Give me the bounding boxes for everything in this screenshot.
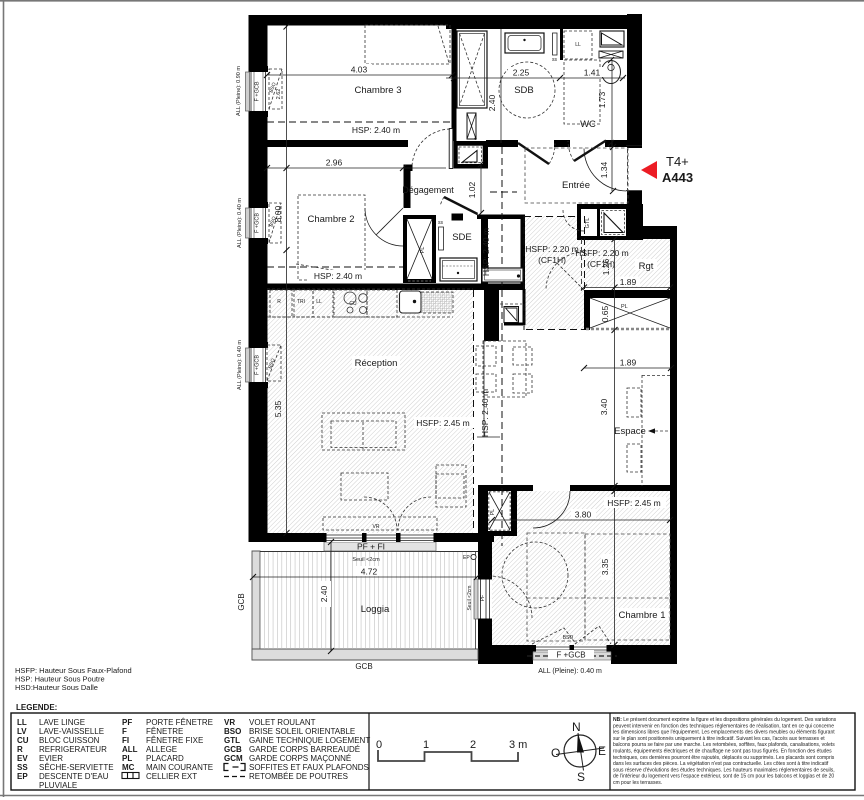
svg-text:(CF1H): (CF1H) xyxy=(587,259,615,269)
svg-text:BSO: BSO xyxy=(224,727,241,736)
svg-text:roulants, équipements électriq: roulants, équipements électriques et de … xyxy=(613,749,832,755)
svg-text:2.96: 2.96 xyxy=(326,158,343,168)
svg-text:GTL: GTL xyxy=(224,736,240,745)
svg-text:Espace: Espace xyxy=(614,426,646,437)
svg-text:BRISE SOLEIL ORIENTABLE: BRISE SOLEIL ORIENTABLE xyxy=(249,727,355,736)
svg-text:1.73: 1.73 xyxy=(597,91,607,108)
svg-text:T4+: T4+ xyxy=(666,154,689,169)
svg-text:3.80: 3.80 xyxy=(575,510,592,520)
svg-text:Réception: Réception xyxy=(355,358,398,369)
svg-text:ALL: ALL xyxy=(122,745,138,754)
svg-text:balcons pourra se faire par un: balcons pourra se faire par une marche. … xyxy=(613,742,835,748)
svg-text:GTL: GTL xyxy=(585,218,591,229)
svg-text:Loggia: Loggia xyxy=(361,604,390,615)
svg-text:SDB: SDB xyxy=(514,85,534,96)
svg-text:2.40: 2.40 xyxy=(487,94,497,111)
svg-text:DESCENTE D'EAU: DESCENTE D'EAU xyxy=(39,772,109,781)
svg-text:PORTE FÊNETRE: PORTE FÊNETRE xyxy=(146,718,213,727)
svg-text:ALLEGE: ALLEGE xyxy=(146,745,177,754)
svg-text:PL: PL xyxy=(420,247,426,254)
svg-text:Chambre 2: Chambre 2 xyxy=(308,214,355,225)
svg-text:GARDE CORPS BARREAUDÉ: GARDE CORPS BARREAUDÉ xyxy=(249,745,360,754)
svg-text:S: S xyxy=(577,770,585,784)
svg-text:FI: FI xyxy=(122,736,129,745)
svg-text:N: N xyxy=(572,720,581,734)
svg-text:Rgt: Rgt xyxy=(639,261,654,272)
svg-text:2.62: 2.62 xyxy=(276,89,282,100)
svg-text:PF + FI: PF + FI xyxy=(357,542,385,552)
svg-text:SOFFITES ET FAUX PLAFONDS: SOFFITES ET FAUX PLAFONDS xyxy=(249,763,369,772)
svg-text:Seuil <2cm: Seuil <2cm xyxy=(352,557,380,563)
svg-text:NB: Le présent document expri: NB: Le présent document exprime la figur… xyxy=(613,717,837,723)
svg-text:3.35: 3.35 xyxy=(600,558,610,575)
svg-text:A443: A443 xyxy=(662,170,693,185)
svg-text:BLOC CUISSON: BLOC CUISSON xyxy=(39,736,100,745)
svg-text:GCB: GCB xyxy=(237,593,246,610)
svg-text:LAVE-VAISSELLE: LAVE-VAISSELLE xyxy=(39,727,104,736)
svg-text:EV: EV xyxy=(17,754,28,763)
svg-text:2.40: 2.40 xyxy=(319,585,329,602)
svg-text:PLACARD: PLACARD xyxy=(146,754,184,763)
svg-text:1.02: 1.02 xyxy=(467,181,477,198)
svg-text:techniques, ces dernières pour: techniques, ces dernières pourront être … xyxy=(613,755,835,761)
svg-text:peuvent intervenir en fonction: peuvent intervenir en fonction des techn… xyxy=(613,723,834,729)
svg-text:REFRIGERATEUR: REFRIGERATEUR xyxy=(39,745,107,754)
svg-text:GCB: GCB xyxy=(224,745,242,754)
svg-text:MAIN COURANTE: MAIN COURANTE xyxy=(146,763,213,772)
svg-text:VR: VR xyxy=(224,718,235,727)
svg-text:CELLIER EXT: CELLIER EXT xyxy=(146,772,197,781)
svg-text:RETOMBÉE DE POUTRES: RETOMBÉE DE POUTRES xyxy=(249,772,348,781)
svg-text:F +GCB: F +GCB xyxy=(255,81,261,101)
svg-text:VOLET ROULANT: VOLET ROULANT xyxy=(249,718,316,727)
svg-text:LL: LL xyxy=(17,718,27,727)
svg-text:BSO: BSO xyxy=(563,635,574,641)
svg-text:PL: PL xyxy=(122,754,132,763)
svg-text:ss: ss xyxy=(552,57,558,63)
svg-text:Entrée: Entrée xyxy=(562,180,590,191)
svg-text:0: 0 xyxy=(376,739,382,751)
svg-text:5.35: 5.35 xyxy=(273,400,283,417)
svg-text:3.40: 3.40 xyxy=(599,398,609,415)
svg-text:2.25: 2.25 xyxy=(513,68,530,78)
svg-text:LL: LL xyxy=(575,42,581,48)
svg-text:EVIER: EVIER xyxy=(39,754,63,763)
svg-text:PLUVIALE: PLUVIALE xyxy=(39,781,77,790)
svg-text:1.89: 1.89 xyxy=(620,277,637,287)
svg-text:GAINE TECHNIQUE LOGEMENT: GAINE TECHNIQUE LOGEMENT xyxy=(249,736,370,745)
svg-text:cm pour les terrasses.: cm pour les terrasses. xyxy=(613,780,662,786)
svg-text:F +GCB: F +GCB xyxy=(255,355,261,375)
svg-text:F +GCB: F +GCB xyxy=(255,213,261,233)
svg-text:ALL (Pleine): 0.90 m: ALL (Pleine): 0.90 m xyxy=(236,66,242,116)
svg-text:4.72: 4.72 xyxy=(361,567,378,577)
svg-text:HSFP: 2.45 m: HSFP: 2.45 m xyxy=(416,418,469,428)
svg-text:TRI: TRI xyxy=(297,299,305,305)
svg-text:les dimensions libres que l'éq: les dimensions libres que l'équipement. … xyxy=(613,730,835,736)
svg-text:LL: LL xyxy=(316,299,322,305)
svg-text:HSD:Hauteur Sous Dalle: HSD:Hauteur Sous Dalle xyxy=(15,683,98,692)
svg-text:PF: PF xyxy=(122,718,132,727)
svg-text:HSP: 2.40 m: HSP: 2.40 m xyxy=(314,271,362,281)
svg-text:GCM: GCM xyxy=(224,754,243,763)
svg-text:HSFP: 2.20 m: HSFP: 2.20 m xyxy=(575,248,628,258)
svg-text:R: R xyxy=(17,745,23,754)
svg-text:2: 2 xyxy=(470,739,476,751)
svg-text:de l'intérieur du logement ver: de l'intérieur du logement vers l'espace… xyxy=(613,774,834,780)
svg-text:EP: EP xyxy=(463,555,470,561)
svg-text:SS: SS xyxy=(17,763,28,772)
svg-text:0.65: 0.65 xyxy=(600,305,610,322)
svg-text:MC: MC xyxy=(122,763,135,772)
svg-text:LEGENDE:: LEGENDE: xyxy=(16,703,57,712)
svg-text:LV: LV xyxy=(17,727,27,736)
svg-text:GARDE CORPS MAÇONNÉ: GARDE CORPS MAÇONNÉ xyxy=(249,754,351,763)
svg-text:(CF1H): (CF1H) xyxy=(538,255,566,265)
svg-text:PF: PF xyxy=(480,595,486,601)
svg-text:E: E xyxy=(598,744,606,758)
svg-text:HSFP: 2.20 m: HSFP: 2.20 m xyxy=(525,244,578,254)
svg-text:Chambre 3: Chambre 3 xyxy=(355,85,402,96)
svg-text:PL: PL xyxy=(490,509,496,515)
svg-text:VR: VR xyxy=(373,524,380,530)
svg-text:sur le plan sont positionnés u: sur le plan sont positionnés uniquement … xyxy=(613,736,825,742)
svg-text:CU: CU xyxy=(17,736,29,745)
svg-text:1: 1 xyxy=(423,739,429,751)
svg-text:O: O xyxy=(551,746,560,760)
svg-text:ALL (Pleine): 0.40 m: ALL (Pleine): 0.40 m xyxy=(237,340,243,390)
svg-text:F +GCB: F +GCB xyxy=(556,651,585,660)
svg-text:GCB: GCB xyxy=(355,662,372,671)
svg-text:R: R xyxy=(277,299,281,305)
svg-text:Seuil <2cm: Seuil <2cm xyxy=(467,586,473,611)
svg-text:4.03: 4.03 xyxy=(351,65,368,75)
svg-text:Dégagement: Dégagement xyxy=(402,185,454,195)
svg-text:LAVE LINGE: LAVE LINGE xyxy=(39,718,85,727)
svg-text:EP: EP xyxy=(17,772,28,781)
svg-text:1.89: 1.89 xyxy=(620,358,637,368)
svg-text:3 m: 3 m xyxy=(509,739,527,751)
svg-text:sous réserve d'évolutions des: sous réserve d'évolutions des études tec… xyxy=(613,767,835,773)
svg-text:CU: CU xyxy=(349,301,357,307)
svg-text:HSFP: 2.45 m: HSFP: 2.45 m xyxy=(607,498,660,508)
svg-text:WC: WC xyxy=(580,119,596,130)
svg-text:FÊNETRE FIXE: FÊNETRE FIXE xyxy=(146,736,203,745)
svg-text:HSP: 2.40 m: HSP: 2.40 m xyxy=(480,389,490,437)
svg-text:HSP: 2.40 m: HSP: 2.40 m xyxy=(352,125,400,135)
svg-text:1.41: 1.41 xyxy=(584,68,601,78)
svg-text:1.34: 1.34 xyxy=(599,161,609,178)
svg-text:ALL (Pleine): 0.40 m: ALL (Pleine): 0.40 m xyxy=(538,668,602,675)
svg-text:dans les surfaces des pièces.: dans les surfaces des pièces. La végétat… xyxy=(613,761,829,767)
svg-text:HSP: 2.40 m: HSP: 2.40 m xyxy=(481,228,491,276)
svg-text:FÊNETRE: FÊNETRE xyxy=(146,727,183,736)
svg-text:F: F xyxy=(122,727,127,736)
svg-text:ALL (Pleine): 0.40 m: ALL (Pleine): 0.40 m xyxy=(237,198,243,248)
svg-text:SDE: SDE xyxy=(452,232,472,243)
svg-text:Chambre 1: Chambre 1 xyxy=(619,610,666,621)
svg-text:ss: ss xyxy=(438,220,444,226)
svg-text:PL: PL xyxy=(621,304,628,310)
svg-text:SÊCHE-SERVIETTE: SÊCHE-SERVIETTE xyxy=(39,763,114,772)
